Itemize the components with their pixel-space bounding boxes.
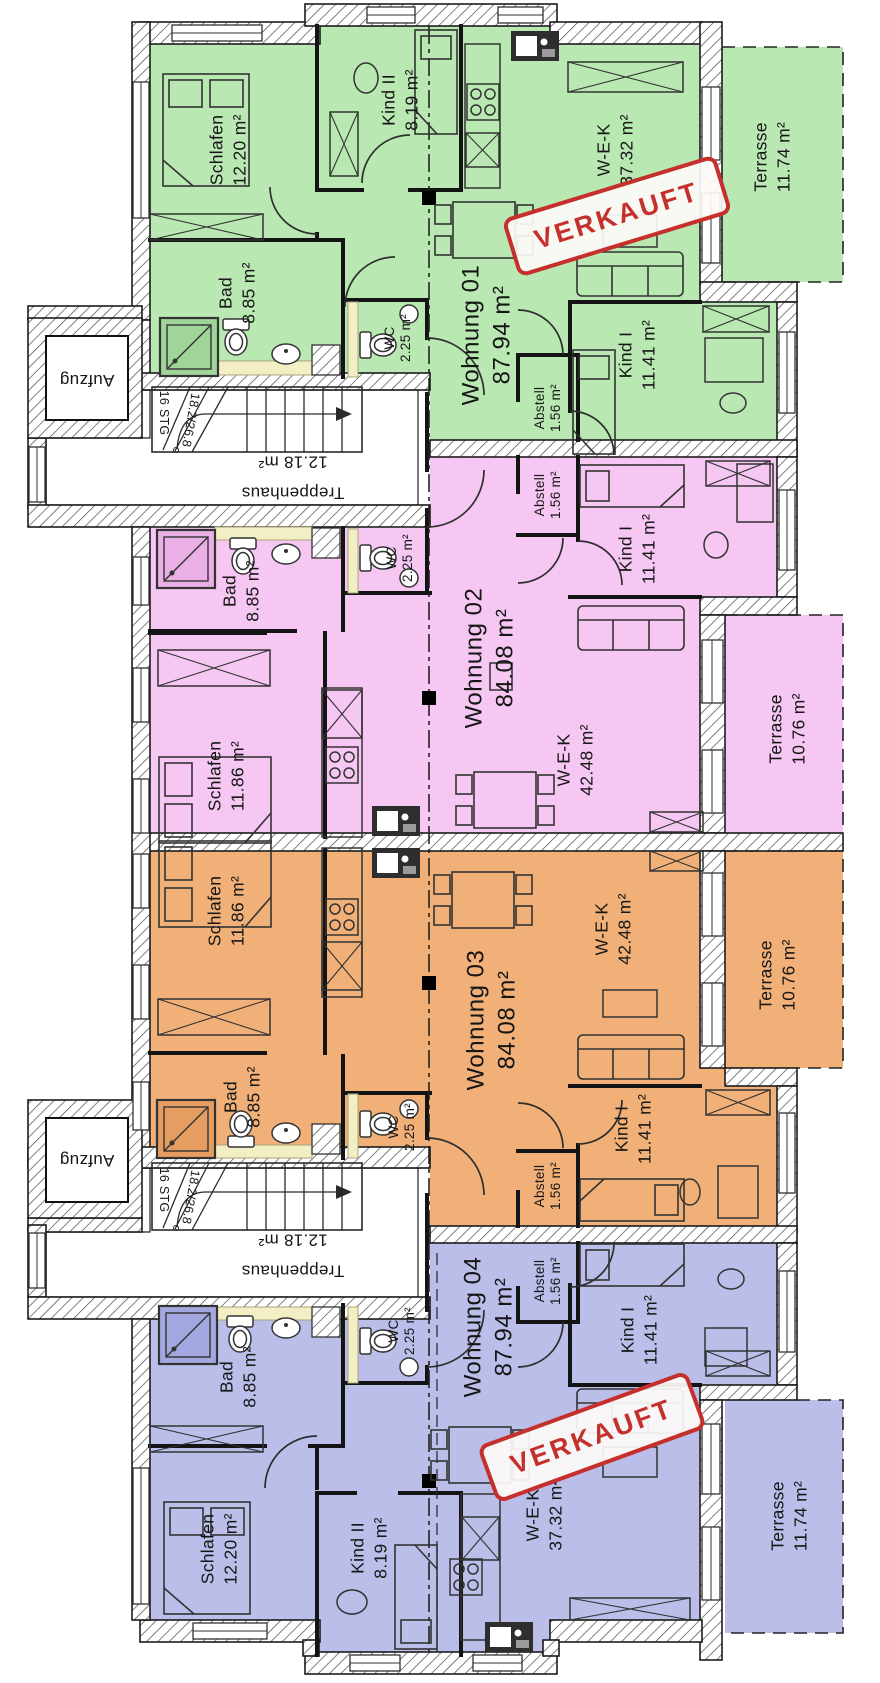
shower-icon — [160, 318, 218, 376]
stairwell-label-top: Treppenhaus 12.18 m² — [242, 446, 345, 509]
room-label-w3-wc: WC 2.25 m² — [386, 1103, 418, 1151]
room-label-w4-bad: Bad 8.85 m² — [215, 1346, 261, 1407]
kitchen-sink-icon — [485, 1622, 533, 1652]
room-label-w4-terrasse: Terrasse 11.74 m² — [766, 1481, 812, 1551]
elevator-label-top: Aufzug — [60, 369, 115, 391]
room-label-w4-wc: WC 2.25 m² — [386, 1307, 418, 1355]
room-label-w1-wek: W-E-K 37.32 m² — [592, 114, 638, 185]
toilet-icon — [223, 319, 249, 355]
kitchen-sink-icon — [372, 806, 420, 836]
room-label-w1-wc: WC 2.25 m² — [382, 314, 414, 362]
kitchen-sink-icon — [372, 848, 420, 878]
room-label-w1-bad: Bad 8.85 m² — [214, 262, 260, 323]
room-label-w2-wc: WC 2.25 m² — [384, 534, 416, 582]
floor-plan: Schlafen 12.20 m² Kind II 8.19 m² W-E-K … — [0, 0, 880, 1683]
room-label-w1-schlafen: Schlafen 12.20 m² — [205, 114, 251, 185]
sink-icon — [400, 1358, 418, 1376]
room-label-w3-kind1: Kind I 11.41 m² — [610, 1094, 656, 1164]
room-label-w2-kind1: Kind I 11.41 m² — [614, 514, 660, 584]
sink-icon — [272, 1318, 300, 1338]
room-label-w3-schlafen: Schlafen 11.86 m² — [203, 876, 249, 947]
floor-plan-graphics — [0, 0, 880, 1683]
room-label-w4-abstell: Abstell 1.56 m² — [532, 1257, 564, 1305]
room-label-w2-abstell: Abstell 1.56 m² — [532, 471, 564, 519]
room-label-w2-bad: Bad 8.85 m² — [218, 560, 264, 621]
room-label-w4-kind1: Kind I 11.41 m² — [616, 1295, 662, 1365]
stair-steps-label-top: 16 STG — [156, 391, 170, 436]
stairwell-label-bottom: Treppenhaus 12.18 m² — [242, 1224, 345, 1287]
room-label-w1-terrasse: Terrasse 11.74 m² — [749, 122, 795, 192]
room-label-w2-terrasse: Terrasse 10.76 m² — [764, 693, 810, 764]
sink-icon — [272, 1123, 300, 1143]
room-label-w3-bad: Bad 8.85 m² — [219, 1066, 265, 1127]
apartment-label-w2: Wohnung 02 84.08 m² — [459, 588, 520, 729]
shower-icon — [159, 1306, 217, 1364]
sink-icon — [272, 544, 300, 564]
shower-icon — [157, 1100, 215, 1158]
room-label-w1-kind1: Kind I 11.41 m² — [614, 320, 660, 390]
room-label-w3-terrasse: Terrasse 10.76 m² — [754, 939, 800, 1010]
sink-icon — [272, 344, 300, 364]
room-label-w1-abstell: Abstell 1.56 m² — [532, 384, 564, 432]
stair-steps-label-bottom: 16 STG — [156, 1168, 170, 1213]
room-label-w2-schlafen: Schlafen 11.86 m² — [203, 741, 249, 812]
room-label-w4-schlafen: Schlafen 12.20 m² — [196, 1513, 242, 1584]
room-label-w1-kind2: Kind II 8.19 m² — [377, 69, 423, 130]
room-label-w3-wek: W-E-K 42.48 m² — [590, 893, 636, 964]
kitchen-sink-icon — [511, 31, 559, 61]
room-label-w3-abstell: Abstell 1.56 m² — [532, 1162, 564, 1210]
apartment-label-w3: Wohnung 03 84.08 m² — [461, 950, 522, 1091]
room-label-w4-kind2: Kind II 8.19 m² — [346, 1517, 392, 1578]
elevator-label-bottom: Aufzug — [60, 1149, 115, 1171]
apartment-label-w1: Wohnung 01 87.94 m² — [456, 265, 517, 406]
apartment-label-w4: Wohnung 04 87.94 m² — [458, 1257, 519, 1398]
room-label-w2-wek: W-E-K 42.48 m² — [552, 724, 598, 795]
shower-icon — [157, 530, 215, 588]
